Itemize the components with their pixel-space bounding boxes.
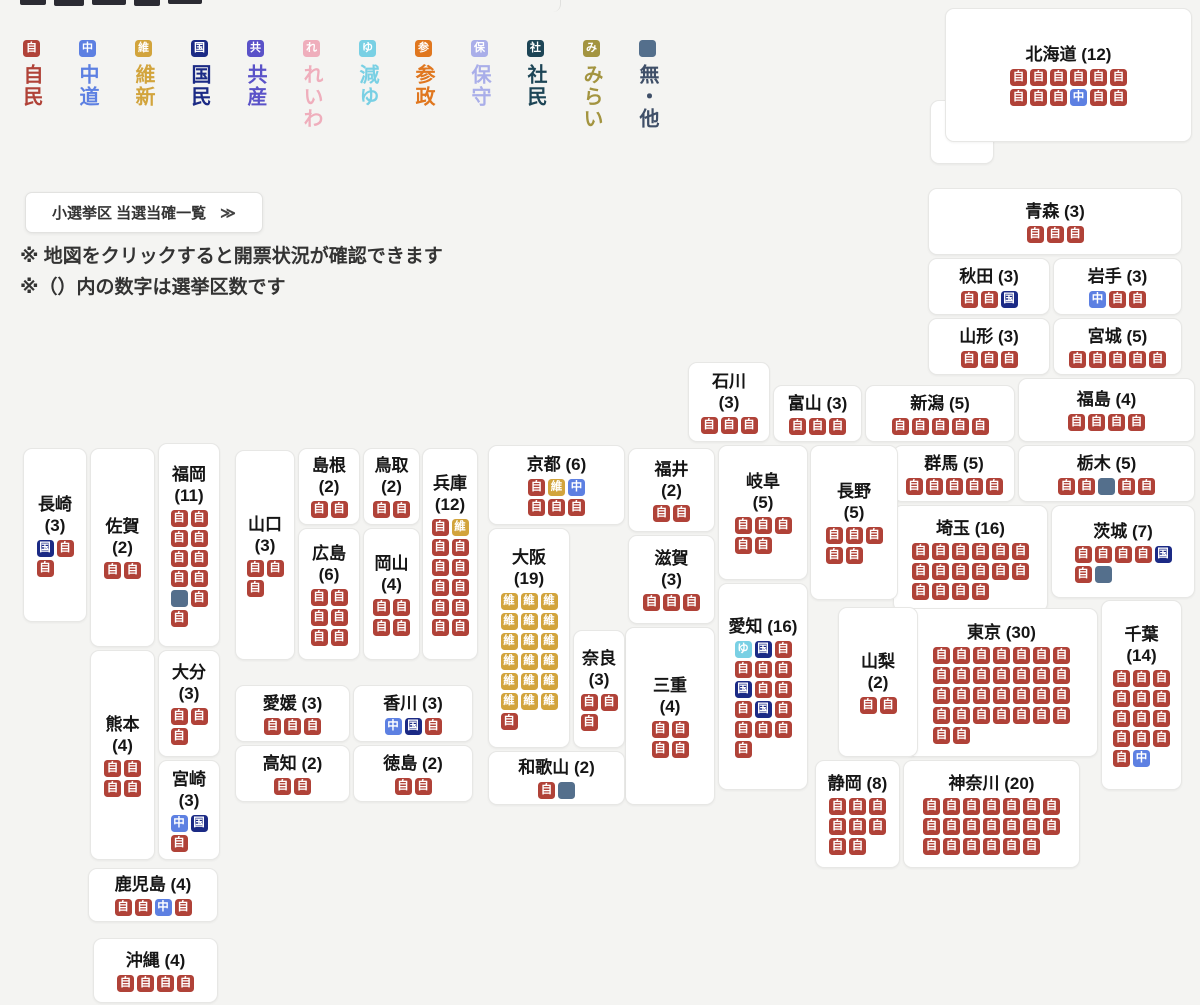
pref-okayama[interactable]: 岡山(4)自自自自: [363, 528, 420, 660]
seat-badge-jimin: 自: [1113, 710, 1130, 727]
seat-badge-jimin: 自: [741, 417, 758, 434]
pref-fukui[interactable]: 福井(2)自自: [628, 448, 715, 532]
seat-badge-jimin: 自: [1133, 710, 1150, 727]
pref-gifu[interactable]: 岐阜(5)自自自自自: [718, 445, 808, 580]
pref-badges-okinawa: 自自自自: [117, 975, 194, 992]
seat-badge-jimin: 自: [880, 697, 897, 714]
seat-badge-jimin: 自: [1129, 291, 1146, 308]
seat-badge-jimin: 自: [673, 505, 690, 522]
seat-badge-jimin: 自: [993, 687, 1010, 704]
seat-badge-jimin: 自: [952, 583, 969, 600]
seat-badge-jimin: 自: [829, 818, 846, 835]
seat-badge-jimin: 自: [284, 718, 301, 735]
pref-oita[interactable]: 大分(3)自自自: [158, 650, 220, 757]
seat-badge-jimin: 自: [1133, 730, 1150, 747]
pref-badges-aomori: 自自自: [1027, 226, 1084, 243]
pref-badges-gifu: 自自自自自: [735, 517, 792, 554]
pref-title-nagasaki: 長崎(3): [38, 494, 72, 536]
pref-badges-shimane: 自自: [311, 501, 348, 518]
seat-badge-chudo: 中: [385, 718, 402, 735]
seat-badge-jimin: 自: [755, 681, 772, 698]
seat-badge-ishin: 維: [521, 673, 538, 690]
pref-badges-hyogo: 自維自自自自自自自自自自: [432, 519, 469, 636]
pref-kyoto[interactable]: 京都 (6)自維中自自自: [488, 445, 625, 525]
seat-badge-jimin: 自: [432, 559, 449, 576]
seat-badge-jimin: 自: [331, 629, 348, 646]
legend-item-chudo: 中中道: [76, 40, 99, 130]
seat-badge-jimin: 自: [952, 543, 969, 560]
seat-badge-jimin: 自: [1033, 687, 1050, 704]
legend-label-reiwa: れいわ: [297, 64, 326, 130]
seat-badge-jimin: 自: [373, 599, 390, 616]
pref-toyama[interactable]: 富山 (3)自自自: [773, 385, 862, 442]
seat-badge-jimin: 自: [171, 530, 188, 547]
party-badge-jimin: 自: [23, 40, 40, 57]
seat-badge-jimin: 自: [581, 694, 598, 711]
seat-badge-jimin: 自: [1108, 414, 1125, 431]
legend-label-chudo: 中道: [73, 64, 102, 108]
seat-badge-jimin: 自: [981, 351, 998, 368]
pref-iwate[interactable]: 岩手 (3)中自自: [1053, 258, 1182, 315]
pref-title-fukui: 福井(2): [655, 459, 689, 501]
seat-badge-jimin: 自: [581, 714, 598, 731]
seat-badge-jimin: 自: [866, 527, 883, 544]
legend-item-genyu: ゆ減ゆ: [356, 40, 379, 130]
pref-kochi[interactable]: 高知 (2)自自: [235, 745, 350, 802]
seat-badge-jimin: 自: [869, 818, 886, 835]
seat-badge-jimin: 自: [1012, 563, 1029, 580]
seat-badge-jimin: 自: [932, 418, 949, 435]
legend-label-kyosan: 共産: [241, 64, 270, 108]
seat-badge-jimin: 自: [973, 687, 990, 704]
seat-badge-jimin: 自: [973, 707, 990, 724]
seat-badge-jimin: 自: [1110, 89, 1127, 106]
seat-badge-jimin: 自: [963, 838, 980, 855]
seat-badge-jimin: 自: [294, 778, 311, 795]
pref-fukushima[interactable]: 福島 (4)自自自自: [1018, 378, 1195, 442]
pref-fukuoka[interactable]: 福岡(11)自自自自自自自自自自: [158, 443, 220, 647]
pref-miyazaki[interactable]: 宮崎(3)中国自: [158, 760, 220, 860]
note-seat-count: ※（）内の数字は選挙区数です: [20, 272, 443, 303]
pref-title-aichi: 愛知 (16): [729, 616, 798, 637]
seat-badge-jimin: 自: [432, 599, 449, 616]
pref-hokkaido[interactable]: 北海道 (12)自自自自自自自自自中自自: [945, 8, 1192, 142]
pref-badges-fukuoka: 自自自自自自自自自自: [171, 510, 208, 627]
seat-badge-chudo: 中: [171, 815, 188, 832]
seat-badge-jimin: 自: [191, 550, 208, 567]
pref-title-ibaraki: 茨城 (7): [1093, 521, 1153, 542]
legend-label-hoshu: 保守: [465, 64, 494, 108]
pref-title-yamaguchi: 山口(3): [248, 514, 282, 556]
pref-mie[interactable]: 三重(4)自自自自: [625, 627, 715, 805]
seat-badge-ishin: 維: [541, 673, 558, 690]
seat-badge-ishin: 維: [501, 613, 518, 630]
seat-badge-jimin: 自: [973, 667, 990, 684]
seat-badge-jimin: 自: [972, 418, 989, 435]
party-badge-mu: [639, 40, 656, 57]
pref-nagasaki[interactable]: 長崎(3)国自自: [23, 448, 87, 622]
seat-badge-jimin: 自: [267, 560, 284, 577]
pref-wakayama[interactable]: 和歌山 (2)自: [488, 751, 625, 805]
seat-badge-jimin: 自: [932, 583, 949, 600]
seat-badge-jimin: 自: [973, 647, 990, 664]
pref-title-kyoto: 京都 (6): [527, 454, 587, 475]
pref-badges-osaka: 維維維維維維維維維維維維維維維維維維自: [501, 593, 558, 730]
seat-badge-jimin: 自: [124, 780, 141, 797]
seat-badge-ishin: 維: [452, 519, 469, 536]
pref-title-gifu: 岐阜(5): [746, 471, 780, 513]
seat-badge-jimin: 自: [1013, 647, 1030, 664]
seat-badge-jimin: 自: [528, 479, 545, 496]
pref-miyagi[interactable]: 宮城 (5)自自自自自: [1053, 318, 1182, 375]
seat-badge-jimin: 自: [1043, 798, 1060, 815]
seat-badge-jimin: 自: [191, 570, 208, 587]
seat-badge-jimin: 自: [912, 563, 929, 580]
seat-badge-jimin: 自: [1003, 818, 1020, 835]
pref-hiroshima[interactable]: 広島(6)自自自自自自: [298, 528, 360, 660]
pref-badges-niigata: 自自自自自: [892, 418, 989, 435]
seat-badge-jimin: 自: [501, 713, 518, 730]
seat-badge-kokumin: 国: [191, 815, 208, 832]
pref-okinawa[interactable]: 沖縄 (4)自自自自: [93, 938, 218, 1003]
seat-badge-jimin: 自: [1012, 543, 1029, 560]
legend-item-ishin: 維維新: [132, 40, 155, 130]
pref-tottori[interactable]: 鳥取(2)自自: [363, 448, 420, 525]
seat-badge-jimin: 自: [311, 501, 328, 518]
legend-item-mu: 無・他: [636, 40, 659, 130]
pref-badges-tokushima: 自自: [395, 778, 432, 795]
party-badge-mirai: み: [583, 40, 600, 57]
seat-badge-jimin: 自: [946, 478, 963, 495]
pref-tokyo[interactable]: 東京 (30)自自自自自自自自自自自自自自自自自自自自自自自自自自自自自自: [905, 608, 1098, 757]
pref-shiga[interactable]: 滋賀(3)自自自: [628, 535, 715, 624]
seat-badge-jimin: 自: [961, 351, 978, 368]
seat-badge-jimin: 自: [1023, 798, 1040, 815]
seat-badge-jimin: 自: [983, 838, 1000, 855]
seat-badge-jimin: 自: [171, 835, 188, 852]
pref-title-nagano: 長野(5): [837, 481, 871, 523]
seat-badge-jimin: 自: [933, 687, 950, 704]
seat-badge-jimin: 自: [1133, 690, 1150, 707]
seat-badge-jimin: 自: [425, 718, 442, 735]
seat-badge-jimin: 自: [652, 741, 669, 758]
pref-badges-chiba: 自自自自自自自自自自自自自中: [1113, 670, 1170, 767]
seat-badge-jimin: 自: [735, 701, 752, 718]
seat-badge-kokumin: 国: [1155, 546, 1172, 563]
pref-kanagawa[interactable]: 神奈川 (20)自自自自自自自自自自自自自自自自自自自自: [903, 760, 1080, 868]
seat-badge-ishin: 維: [501, 653, 518, 670]
pref-badges-shiga: 自自自: [643, 594, 700, 611]
seat-badge-jimin: 自: [826, 547, 843, 564]
pref-title-saitama: 埼玉 (16): [936, 518, 1005, 539]
pref-badges-ibaraki: 自自自自国自: [1075, 546, 1172, 583]
pref-ishikawa[interactable]: 石川(3)自自自: [688, 362, 770, 442]
seat-badge-jimin: 自: [672, 721, 689, 738]
pref-badges-gunma: 自自自自自: [906, 478, 1003, 495]
seat-badge-jimin: 自: [966, 478, 983, 495]
seat-badge-jimin: 自: [1033, 667, 1050, 684]
seat-badge-jimin: 自: [1058, 478, 1075, 495]
seat-badge-jimin: 自: [992, 563, 1009, 580]
seat-badge-jimin: 自: [548, 499, 565, 516]
seat-badge-jimin: 自: [775, 681, 792, 698]
pref-title-fukushima: 福島 (4): [1077, 389, 1137, 410]
pref-saga[interactable]: 佐賀(2)自自: [90, 448, 155, 647]
seat-badge-ishin: 維: [541, 613, 558, 630]
pref-gunma[interactable]: 群馬 (5)自自自自自: [893, 445, 1015, 502]
seat-badge-jimin: 自: [943, 798, 960, 815]
seat-badge-jimin: 自: [912, 583, 929, 600]
seat-badge-jimin: 自: [1033, 647, 1050, 664]
pref-title-ehime: 愛媛 (3): [263, 693, 323, 714]
seat-badge-jimin: 自: [1138, 478, 1155, 495]
seat-badge-jimin: 自: [1113, 670, 1130, 687]
seat-badge-genyu: ゆ: [735, 641, 752, 658]
seat-badge-jimin: 自: [775, 721, 792, 738]
seat-badge-jimin: 自: [157, 975, 174, 992]
seat-badge-jimin: 自: [829, 838, 846, 855]
legend-item-hoshu: 保保守: [468, 40, 491, 130]
pref-ehime[interactable]: 愛媛 (3)自自自: [235, 685, 350, 742]
seat-badge-jimin: 自: [601, 694, 618, 711]
seat-badge-kokumin: 国: [405, 718, 422, 735]
pref-badges-nagasaki: 国自自: [37, 540, 74, 577]
seat-badge-jimin: 自: [735, 661, 752, 678]
pref-yamanashi[interactable]: 山梨(2)自自: [838, 607, 918, 757]
district-winner-list-label: 小選挙区 当選当確一覧: [52, 202, 206, 223]
seat-badge-jimin: 自: [171, 708, 188, 725]
seat-badge-jimin: 自: [701, 417, 718, 434]
pref-badges-fukushima: 自自自自: [1068, 414, 1145, 431]
seat-badge-mu: [558, 782, 575, 799]
seat-badge-jimin: 自: [1128, 414, 1145, 431]
seat-badge-jimin: 自: [37, 560, 54, 577]
seat-badge-ishin: 維: [548, 479, 565, 496]
pref-badges-nagano: 自自自自自: [826, 527, 883, 564]
pref-saitama[interactable]: 埼玉 (16)自自自自自自自自自自自自自自自自: [893, 505, 1048, 612]
pref-title-tochigi: 栃木 (5): [1077, 453, 1137, 474]
pref-title-miyazaki: 宮崎(3): [172, 769, 206, 811]
legend-label-shamin: 社民: [521, 64, 550, 108]
pref-title-shiga: 滋賀(3): [655, 548, 689, 590]
pref-hyogo[interactable]: 兵庫(12)自維自自自自自自自自自自: [422, 448, 478, 660]
seat-badge-jimin: 自: [1047, 226, 1064, 243]
pref-title-kanagawa: 神奈川 (20): [949, 773, 1035, 794]
pref-title-shizuoka: 静岡 (8): [828, 773, 888, 794]
seat-badge-jimin: 自: [452, 559, 469, 576]
seat-badge-jimin: 自: [171, 610, 188, 627]
pref-title-okinawa: 沖縄 (4): [126, 950, 186, 971]
pref-badges-oita: 自自自: [171, 708, 208, 745]
seat-badge-jimin: 自: [373, 619, 390, 636]
seat-badge-jimin: 自: [735, 741, 752, 758]
seat-badge-mu: [1098, 478, 1115, 495]
pref-kumamoto[interactable]: 熊本(4)自自自自: [90, 650, 155, 860]
seat-badge-ishin: 維: [521, 633, 538, 650]
pref-kagawa[interactable]: 香川 (3)中国自: [353, 685, 473, 742]
pref-aomori[interactable]: 青森 (3)自自自: [928, 188, 1182, 255]
seat-badge-jimin: 自: [1023, 838, 1040, 855]
pref-badges-akita: 自自国: [961, 291, 1018, 308]
district-winner-list-button[interactable]: 小選挙区 当選当確一覧 ≫: [25, 192, 263, 233]
seat-badge-jimin: 自: [923, 818, 940, 835]
pref-title-chiba: 千葉(14): [1125, 624, 1159, 666]
seat-badge-jimin: 自: [933, 727, 950, 744]
seat-badge-jimin: 自: [191, 530, 208, 547]
seat-badge-jimin: 自: [933, 667, 950, 684]
pref-shimane[interactable]: 島根(2)自自: [298, 448, 360, 525]
pref-nara[interactable]: 奈良(3)自自自: [573, 630, 625, 748]
pref-badges-iwate: 中自自: [1089, 291, 1146, 308]
seat-badge-jimin: 自: [393, 599, 410, 616]
seat-badge-jimin: 自: [568, 499, 585, 516]
pref-title-miyagi: 宮城 (5): [1088, 326, 1148, 347]
pref-kagoshima[interactable]: 鹿児島 (4)自自中自: [88, 868, 218, 922]
seat-badge-jimin: 自: [943, 818, 960, 835]
seat-badge-jimin: 自: [846, 527, 863, 544]
legend-label-genyu: 減ゆ: [353, 64, 382, 108]
seat-badge-jimin: 自: [1013, 667, 1030, 684]
pref-nagano[interactable]: 長野(5)自自自自自: [810, 445, 898, 600]
seat-badge-jimin: 自: [247, 580, 264, 597]
seat-badge-jimin: 自: [1027, 226, 1044, 243]
seat-badge-chudo: 中: [1089, 291, 1106, 308]
seat-badge-jimin: 自: [849, 838, 866, 855]
seat-badge-jimin: 自: [1115, 546, 1132, 563]
pref-osaka[interactable]: 大阪(19)維維維維維維維維維維維維維維維維維維自: [488, 528, 570, 748]
seat-badge-jimin: 自: [721, 417, 738, 434]
seat-badge-jimin: 自: [860, 697, 877, 714]
seat-badge-ishin: 維: [541, 593, 558, 610]
seat-badge-jimin: 自: [175, 899, 192, 916]
seat-badge-jimin: 自: [932, 543, 949, 560]
pref-badges-kochi: 自自: [274, 778, 311, 795]
seat-badge-jimin: 自: [1030, 69, 1047, 86]
pref-chiba[interactable]: 千葉(14)自自自自自自自自自自自自自中: [1101, 600, 1182, 790]
pref-ibaraki[interactable]: 茨城 (7)自自自自国自: [1051, 505, 1195, 598]
seat-badge-jimin: 自: [393, 619, 410, 636]
seat-badge-jimin: 自: [993, 707, 1010, 724]
pref-yamagata[interactable]: 山形 (3)自自自: [928, 318, 1050, 375]
seat-badge-jimin: 自: [672, 741, 689, 758]
pref-title-okayama: 岡山(4): [375, 553, 409, 595]
seat-badge-jimin: 自: [1013, 687, 1030, 704]
seat-badge-jimin: 自: [1010, 69, 1027, 86]
seat-badge-jimin: 自: [104, 562, 121, 579]
pref-badges-yamaguchi: 自自自: [247, 560, 284, 597]
seat-badge-jimin: 自: [953, 727, 970, 744]
seat-badge-jimin: 自: [1053, 687, 1070, 704]
seat-badge-jimin: 自: [1090, 69, 1107, 86]
seat-badge-jimin: 自: [829, 798, 846, 815]
legend-label-mu: 無・他: [633, 64, 662, 130]
legend-label-sansei: 参政: [409, 64, 438, 108]
seat-badge-jimin: 自: [829, 418, 846, 435]
seat-badge-jimin: 自: [432, 619, 449, 636]
seat-badge-jimin: 自: [1118, 478, 1135, 495]
pref-title-saga: 佐賀(2): [106, 516, 140, 558]
pref-shizuoka[interactable]: 静岡 (8)自自自自自自自自: [815, 760, 900, 868]
seat-badge-jimin: 自: [826, 527, 843, 544]
seat-badge-jimin: 自: [912, 418, 929, 435]
pref-tochigi[interactable]: 栃木 (5)自自自自: [1018, 445, 1195, 502]
party-badge-shamin: 社: [527, 40, 544, 57]
seat-badge-jimin: 自: [104, 760, 121, 777]
pref-badges-saitama: 自自自自自自自自自自自自自自自自: [912, 543, 1029, 600]
pref-title-gunma: 群馬 (5): [924, 453, 984, 474]
pref-title-osaka: 大阪(19): [512, 547, 546, 589]
pref-title-kagawa: 香川 (3): [383, 693, 443, 714]
seat-badge-jimin: 自: [393, 501, 410, 518]
seat-badge-jimin: 自: [171, 510, 188, 527]
seat-badge-jimin: 自: [1153, 670, 1170, 687]
seat-badge-ishin: 維: [501, 633, 518, 650]
seat-badge-jimin: 自: [963, 798, 980, 815]
seat-badge-jimin: 自: [735, 537, 752, 554]
pref-title-hyogo: 兵庫(12): [433, 473, 467, 515]
pref-akita[interactable]: 秋田 (3)自自国: [928, 258, 1050, 315]
seat-badge-jimin: 自: [775, 641, 792, 658]
seat-badge-kokumin: 国: [1001, 291, 1018, 308]
pref-title-hiroshima: 広島(6): [312, 543, 346, 585]
seat-badge-jimin: 自: [191, 590, 208, 607]
seat-badge-jimin: 自: [432, 539, 449, 556]
pref-badges-shizuoka: 自自自自自自自自: [829, 798, 886, 855]
seat-badge-jimin: 自: [1078, 478, 1095, 495]
seat-badge-jimin: 自: [415, 778, 432, 795]
seat-badge-jimin: 自: [1075, 566, 1092, 583]
legend-item-mirai: みみらい: [580, 40, 603, 130]
seat-badge-jimin: 自: [972, 563, 989, 580]
party-badge-chudo: 中: [79, 40, 96, 57]
seat-badge-ishin: 維: [501, 693, 518, 710]
legend-item-reiwa: れれいわ: [300, 40, 323, 130]
seat-badge-jimin: 自: [171, 550, 188, 567]
pref-badges-yamanashi: 自自: [860, 697, 897, 714]
seat-badge-jimin: 自: [1129, 351, 1146, 368]
pref-title-iwate: 岩手 (3): [1088, 266, 1148, 287]
legend-label-mirai: みらい: [577, 64, 606, 130]
pref-title-mie: 三重(4): [653, 675, 687, 717]
seat-badge-jimin: 自: [452, 599, 469, 616]
cropped-tab-edge: [348, 0, 561, 12]
seat-badge-jimin: 自: [311, 629, 328, 646]
seat-badge-jimin: 自: [304, 718, 321, 735]
seat-badge-jimin: 自: [528, 499, 545, 516]
seat-badge-jimin: 自: [452, 619, 469, 636]
pref-title-ishikawa: 石川(3): [712, 371, 746, 413]
seat-badge-ishin: 維: [521, 693, 538, 710]
pref-badges-ehime: 自自自: [264, 718, 321, 735]
seat-badge-jimin: 自: [104, 780, 121, 797]
seat-badge-jimin: 自: [57, 540, 74, 557]
party-badge-kokumin: 国: [191, 40, 208, 57]
pref-yamaguchi[interactable]: 山口(3)自自自: [235, 450, 295, 660]
legend-label-ishin: 維新: [129, 64, 158, 108]
pref-tokushima[interactable]: 徳島 (2)自自: [353, 745, 473, 802]
pref-badges-yamagata: 自自自: [961, 351, 1018, 368]
pref-title-tottori: 鳥取(2): [375, 455, 409, 497]
seat-badge-jimin: 自: [755, 517, 772, 534]
pref-title-aomori: 青森 (3): [1025, 201, 1085, 222]
legend-item-kokumin: 国国民: [188, 40, 211, 130]
pref-aichi[interactable]: 愛知 (16)ゆ国自自自自国自自自国自自自自自: [718, 583, 808, 790]
pref-niigata[interactable]: 新潟 (5)自自自自自: [865, 385, 1015, 442]
seat-badge-jimin: 自: [1050, 69, 1067, 86]
seat-badge-jimin: 自: [849, 818, 866, 835]
seat-badge-jimin: 自: [1043, 818, 1060, 835]
seat-badge-jimin: 自: [1113, 690, 1130, 707]
